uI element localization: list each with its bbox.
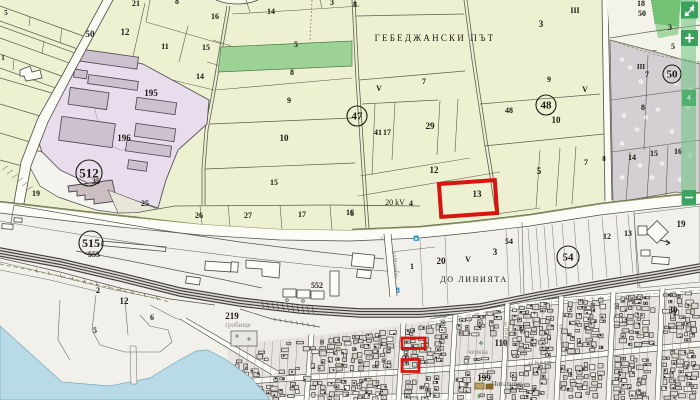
svg-text:2: 2 bbox=[96, 286, 100, 295]
svg-text:15: 15 bbox=[270, 178, 278, 187]
svg-text:6: 6 bbox=[150, 313, 154, 322]
svg-text:7: 7 bbox=[584, 158, 588, 167]
svg-text:ул Кокиче: ул Кокиче bbox=[528, 359, 552, 366]
svg-text:9: 9 bbox=[547, 75, 551, 84]
svg-text:14: 14 bbox=[196, 72, 204, 81]
svg-text:515: 515 bbox=[82, 236, 100, 250]
svg-text:3: 3 bbox=[668, 23, 672, 32]
svg-text:✻: ✻ bbox=[627, 64, 633, 72]
svg-text:6: 6 bbox=[350, 209, 354, 218]
svg-text:15: 15 bbox=[202, 43, 210, 52]
svg-text:V: V bbox=[582, 85, 588, 94]
svg-text:196: 196 bbox=[117, 133, 131, 143]
svg-text:12: 12 bbox=[120, 296, 130, 306]
svg-text:16: 16 bbox=[211, 12, 219, 21]
svg-text:14: 14 bbox=[267, 7, 275, 16]
svg-text:195: 195 bbox=[144, 88, 158, 98]
svg-text:12: 12 bbox=[603, 232, 611, 241]
svg-text:4: 4 bbox=[687, 95, 691, 102]
svg-text:8: 8 bbox=[175, 0, 179, 6]
svg-text:14: 14 bbox=[628, 153, 636, 162]
svg-text:15: 15 bbox=[650, 149, 658, 158]
svg-text:18: 18 bbox=[637, 0, 645, 8]
svg-text:5: 5 bbox=[4, 9, 8, 17]
svg-text:5: 5 bbox=[537, 166, 542, 176]
svg-text:17: 17 bbox=[298, 210, 306, 219]
svg-text:10: 10 bbox=[280, 133, 290, 143]
svg-text:✻: ✻ bbox=[634, 126, 640, 134]
svg-text:ул Липа: ул Липа bbox=[308, 346, 314, 364]
svg-text:8: 8 bbox=[353, 0, 357, 9]
svg-text:✻: ✻ bbox=[637, 162, 643, 170]
svg-text:⚘: ⚘ bbox=[478, 340, 484, 348]
svg-text:512: 512 bbox=[79, 165, 99, 180]
svg-text:50: 50 bbox=[86, 29, 96, 39]
svg-text:5: 5 bbox=[671, 42, 675, 51]
svg-text:3: 3 bbox=[493, 247, 498, 257]
svg-text:8: 8 bbox=[602, 155, 606, 163]
svg-text:12: 12 bbox=[430, 165, 440, 175]
svg-text:50: 50 bbox=[638, 9, 646, 18]
svg-text:⚘: ⚘ bbox=[476, 393, 482, 400]
svg-text:13: 13 bbox=[624, 229, 632, 238]
svg-text:V: V bbox=[376, 84, 382, 93]
svg-text:20: 20 bbox=[437, 256, 447, 266]
svg-text:✻: ✻ bbox=[655, 106, 661, 114]
svg-text:199: 199 bbox=[477, 373, 491, 383]
svg-text:13: 13 bbox=[473, 189, 483, 199]
svg-text:8: 8 bbox=[641, 103, 645, 112]
svg-text:9: 9 bbox=[287, 96, 291, 105]
svg-text:гробище: гробище bbox=[225, 321, 251, 329]
svg-text:12: 12 bbox=[121, 27, 131, 37]
svg-text:50: 50 bbox=[667, 69, 679, 81]
svg-text:25: 25 bbox=[141, 199, 149, 208]
svg-text:47: 47 bbox=[352, 111, 364, 123]
svg-text:26: 26 bbox=[195, 211, 203, 220]
svg-text:✻: ✻ bbox=[619, 56, 625, 64]
svg-text:20 kV: 20 kV bbox=[385, 198, 405, 207]
svg-text:Читалище: Читалище bbox=[492, 380, 522, 388]
svg-text:ДО ЛИНИЯТА: ДО ЛИНИЯТА bbox=[440, 275, 508, 284]
svg-text:7: 7 bbox=[645, 70, 649, 79]
svg-text:✻: ✻ bbox=[659, 160, 665, 168]
svg-text:✻: ✻ bbox=[649, 174, 655, 182]
svg-text:✻: ✻ bbox=[621, 112, 627, 120]
svg-text:7: 7 bbox=[422, 77, 426, 86]
svg-text:3: 3 bbox=[330, 0, 334, 7]
svg-text:ГЕБЕДЖАНСКИ ПЪТ: ГЕБЕДЖАНСКИ ПЪТ bbox=[375, 33, 496, 43]
svg-text:48: 48 bbox=[505, 106, 513, 115]
svg-text:10: 10 bbox=[552, 115, 562, 125]
svg-text:✻: ✻ bbox=[643, 114, 649, 122]
svg-text:16: 16 bbox=[674, 147, 682, 156]
svg-text:17: 17 bbox=[383, 128, 391, 137]
svg-text:1: 1 bbox=[1, 54, 5, 62]
svg-text:54: 54 bbox=[505, 237, 513, 246]
svg-text:30: 30 bbox=[669, 305, 679, 315]
svg-text:219: 219 bbox=[225, 311, 239, 321]
svg-text:48: 48 bbox=[541, 100, 553, 112]
svg-text:черква: черква bbox=[468, 348, 489, 356]
svg-text:21: 21 bbox=[132, 0, 140, 8]
svg-text:Табор: Табор bbox=[434, 315, 447, 320]
svg-text:3: 3 bbox=[539, 19, 544, 29]
svg-text:553: 553 bbox=[88, 250, 100, 259]
svg-text:552: 552 bbox=[311, 281, 323, 290]
svg-text:V: V bbox=[465, 255, 471, 264]
svg-text:19: 19 bbox=[677, 219, 687, 229]
svg-text:19: 19 bbox=[32, 189, 40, 198]
svg-text:5: 5 bbox=[93, 326, 97, 335]
svg-text:5: 5 bbox=[294, 40, 298, 49]
svg-text:41: 41 bbox=[374, 128, 382, 137]
svg-text:4: 4 bbox=[409, 199, 413, 208]
svg-text:29: 29 bbox=[426, 121, 436, 131]
svg-text:✻: ✻ bbox=[619, 174, 625, 182]
svg-text:III: III bbox=[570, 6, 579, 15]
svg-text:1: 1 bbox=[410, 262, 414, 271]
svg-text:✻: ✻ bbox=[669, 128, 675, 136]
svg-text:27: 27 bbox=[244, 211, 252, 220]
svg-text:8: 8 bbox=[290, 68, 294, 77]
svg-text:✻: ✻ bbox=[619, 140, 625, 148]
svg-text:11: 11 bbox=[161, 42, 169, 51]
svg-text:10а 12: 10а 12 bbox=[625, 296, 641, 302]
svg-text:✻: ✻ bbox=[638, 78, 644, 86]
